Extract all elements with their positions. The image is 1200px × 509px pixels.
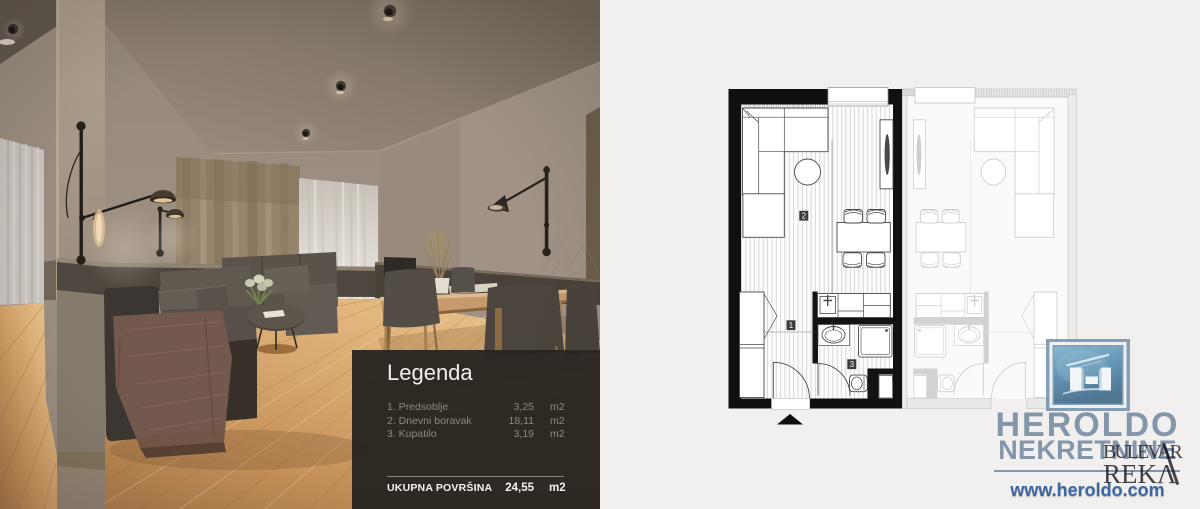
svg-text:3: 3 bbox=[850, 360, 855, 369]
svg-text:2: 2 bbox=[802, 212, 807, 221]
svg-text:1: 1 bbox=[789, 321, 794, 330]
